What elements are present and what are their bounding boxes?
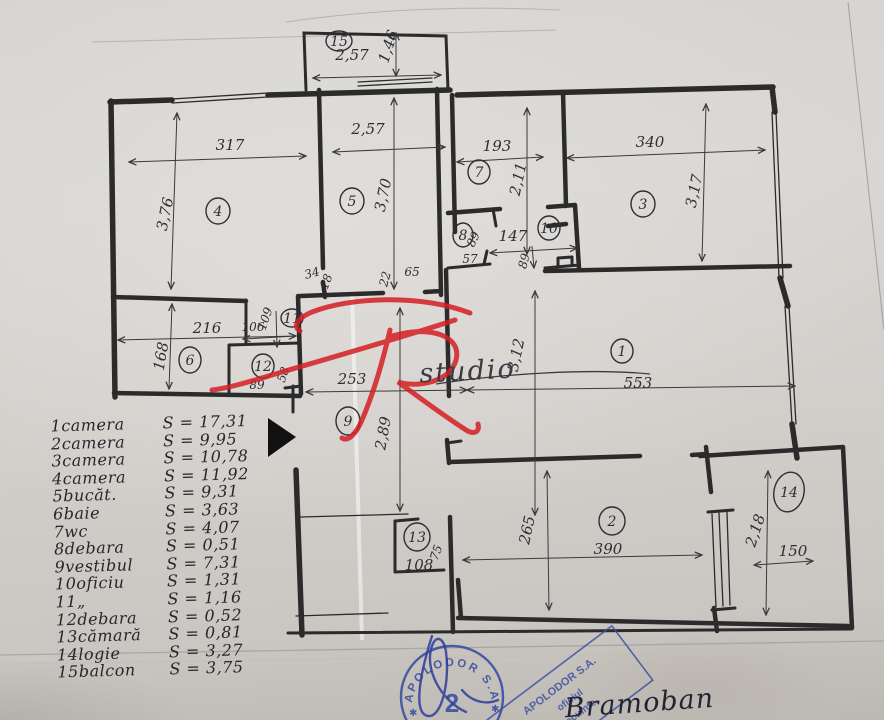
stamp-star: ✱ bbox=[409, 708, 417, 719]
room-number: 9 bbox=[344, 414, 353, 430]
room-number-badge: 6 bbox=[179, 347, 201, 373]
dim-line bbox=[766, 471, 768, 615]
legend-rows: 1cameraS = 17,312cameraS = 9,953cameraS … bbox=[50, 411, 307, 682]
paper-edge-line bbox=[848, 2, 884, 330]
watermark-studio: studio bbox=[419, 354, 650, 390]
dim-label: 340 bbox=[636, 133, 665, 151]
dim-line bbox=[463, 555, 702, 560]
dim-line bbox=[457, 157, 543, 162]
dim-label: 65 bbox=[404, 265, 419, 279]
dim-label: 2,18 bbox=[741, 512, 769, 550]
room-number: 7 bbox=[475, 165, 484, 181]
dim-line bbox=[129, 156, 306, 162]
dim-label: 2,57 bbox=[350, 120, 385, 138]
walls-bottom-outer bbox=[288, 629, 852, 633]
legend-room-number: 8 bbox=[54, 539, 65, 558]
legend-room-number: 13 bbox=[56, 627, 78, 647]
room-number-badge: 2 bbox=[599, 507, 625, 535]
studio-text: studio bbox=[419, 354, 517, 390]
legend-room-number: 9 bbox=[54, 557, 65, 576]
legend-room-number: 7 bbox=[53, 522, 64, 541]
dim-label: 22 bbox=[376, 270, 394, 289]
dim-line bbox=[276, 311, 277, 347]
legend-room-number: 11 bbox=[55, 592, 77, 612]
scanned-floorplan-photo: 2,57 1,46 317 3,76 2,57 3,70 193 2,11 34… bbox=[0, 0, 884, 720]
vertical-crease bbox=[352, 292, 362, 640]
legend-room-number: 3 bbox=[51, 451, 62, 470]
room-number: 6 bbox=[186, 353, 195, 369]
dim-label: 89 bbox=[515, 251, 533, 270]
legend-room-number: 14 bbox=[57, 645, 79, 665]
dim-line bbox=[306, 390, 467, 392]
room-number-badge: 4 bbox=[206, 198, 230, 224]
room-number-badge: 15 bbox=[326, 31, 352, 51]
room-number: 2 bbox=[607, 514, 617, 530]
legend-room-number: 2 bbox=[51, 434, 62, 453]
room-number: 1 bbox=[618, 344, 627, 360]
legend-room-number: 12 bbox=[56, 609, 78, 629]
dim-line bbox=[313, 75, 441, 78]
dim-label: 109 bbox=[255, 305, 276, 332]
legend-room-number: 5 bbox=[52, 487, 63, 506]
room-number: 10 bbox=[540, 221, 558, 237]
room-number: 3 bbox=[639, 197, 648, 213]
dim-line bbox=[490, 248, 577, 253]
room-number: 14 bbox=[780, 485, 798, 501]
legend-room-area: S = 3,75 bbox=[169, 659, 244, 679]
dim-label: 553 bbox=[624, 374, 653, 392]
dim-label: 216 bbox=[192, 319, 222, 337]
room-number-badge: 1 bbox=[611, 339, 633, 363]
room-number: 4 bbox=[213, 204, 223, 220]
legend-room-number: 6 bbox=[53, 504, 64, 523]
room-number: 8 bbox=[459, 228, 468, 244]
legend-room-number: 4 bbox=[52, 469, 63, 488]
dim-line bbox=[333, 147, 445, 152]
legend-room-name: 15balcon bbox=[57, 661, 169, 682]
dim-label: 57 bbox=[462, 252, 478, 266]
dim-line bbox=[567, 150, 765, 158]
legend-room-number: 10 bbox=[55, 574, 77, 594]
dim-label: 3,76 bbox=[153, 195, 178, 232]
room-number-badge: 5 bbox=[340, 188, 364, 214]
dim-label: 34 bbox=[303, 264, 321, 281]
dim-label: 150 bbox=[779, 542, 808, 560]
room-number-badge: 14 bbox=[770, 469, 808, 514]
room-number-badge: 3 bbox=[631, 191, 655, 217]
crease-line bbox=[92, 30, 556, 42]
room-number-badge: 10 bbox=[538, 216, 560, 240]
room-legend: 1cameraS = 17,312cameraS = 9,953cameraS … bbox=[50, 411, 307, 682]
dim-label: 390 bbox=[594, 540, 623, 558]
dim-label: 168 bbox=[150, 340, 173, 371]
dim-label: 147 bbox=[499, 227, 528, 245]
legend-room-number: 1 bbox=[50, 416, 61, 435]
room-number-badge: 7 bbox=[468, 160, 490, 184]
dim-label: 3,17 bbox=[682, 172, 707, 209]
room-number-badge: 13 bbox=[404, 523, 430, 551]
crease-line bbox=[286, 8, 560, 22]
legend-room-number: 15 bbox=[57, 662, 79, 682]
dim-label: 317 bbox=[216, 136, 245, 154]
room-number: 15 bbox=[330, 34, 348, 50]
dim-label: 75 bbox=[427, 543, 445, 562]
room-number: 13 bbox=[408, 530, 426, 546]
watermark-stroke bbox=[296, 300, 470, 331]
dim-label: 1,46 bbox=[375, 27, 403, 65]
dim-label: 193 bbox=[483, 137, 512, 155]
dim-line bbox=[547, 471, 549, 610]
handwritten-signature: Bramoban bbox=[563, 683, 715, 720]
dim-line bbox=[754, 561, 813, 565]
dim-label: 3,70 bbox=[371, 176, 396, 213]
dim-label: 265 bbox=[515, 514, 539, 547]
dim-label: 2,89 bbox=[371, 415, 395, 452]
room-number: 12 bbox=[254, 359, 272, 375]
dim-label: 253 bbox=[337, 370, 367, 388]
room-number: 5 bbox=[348, 194, 357, 210]
